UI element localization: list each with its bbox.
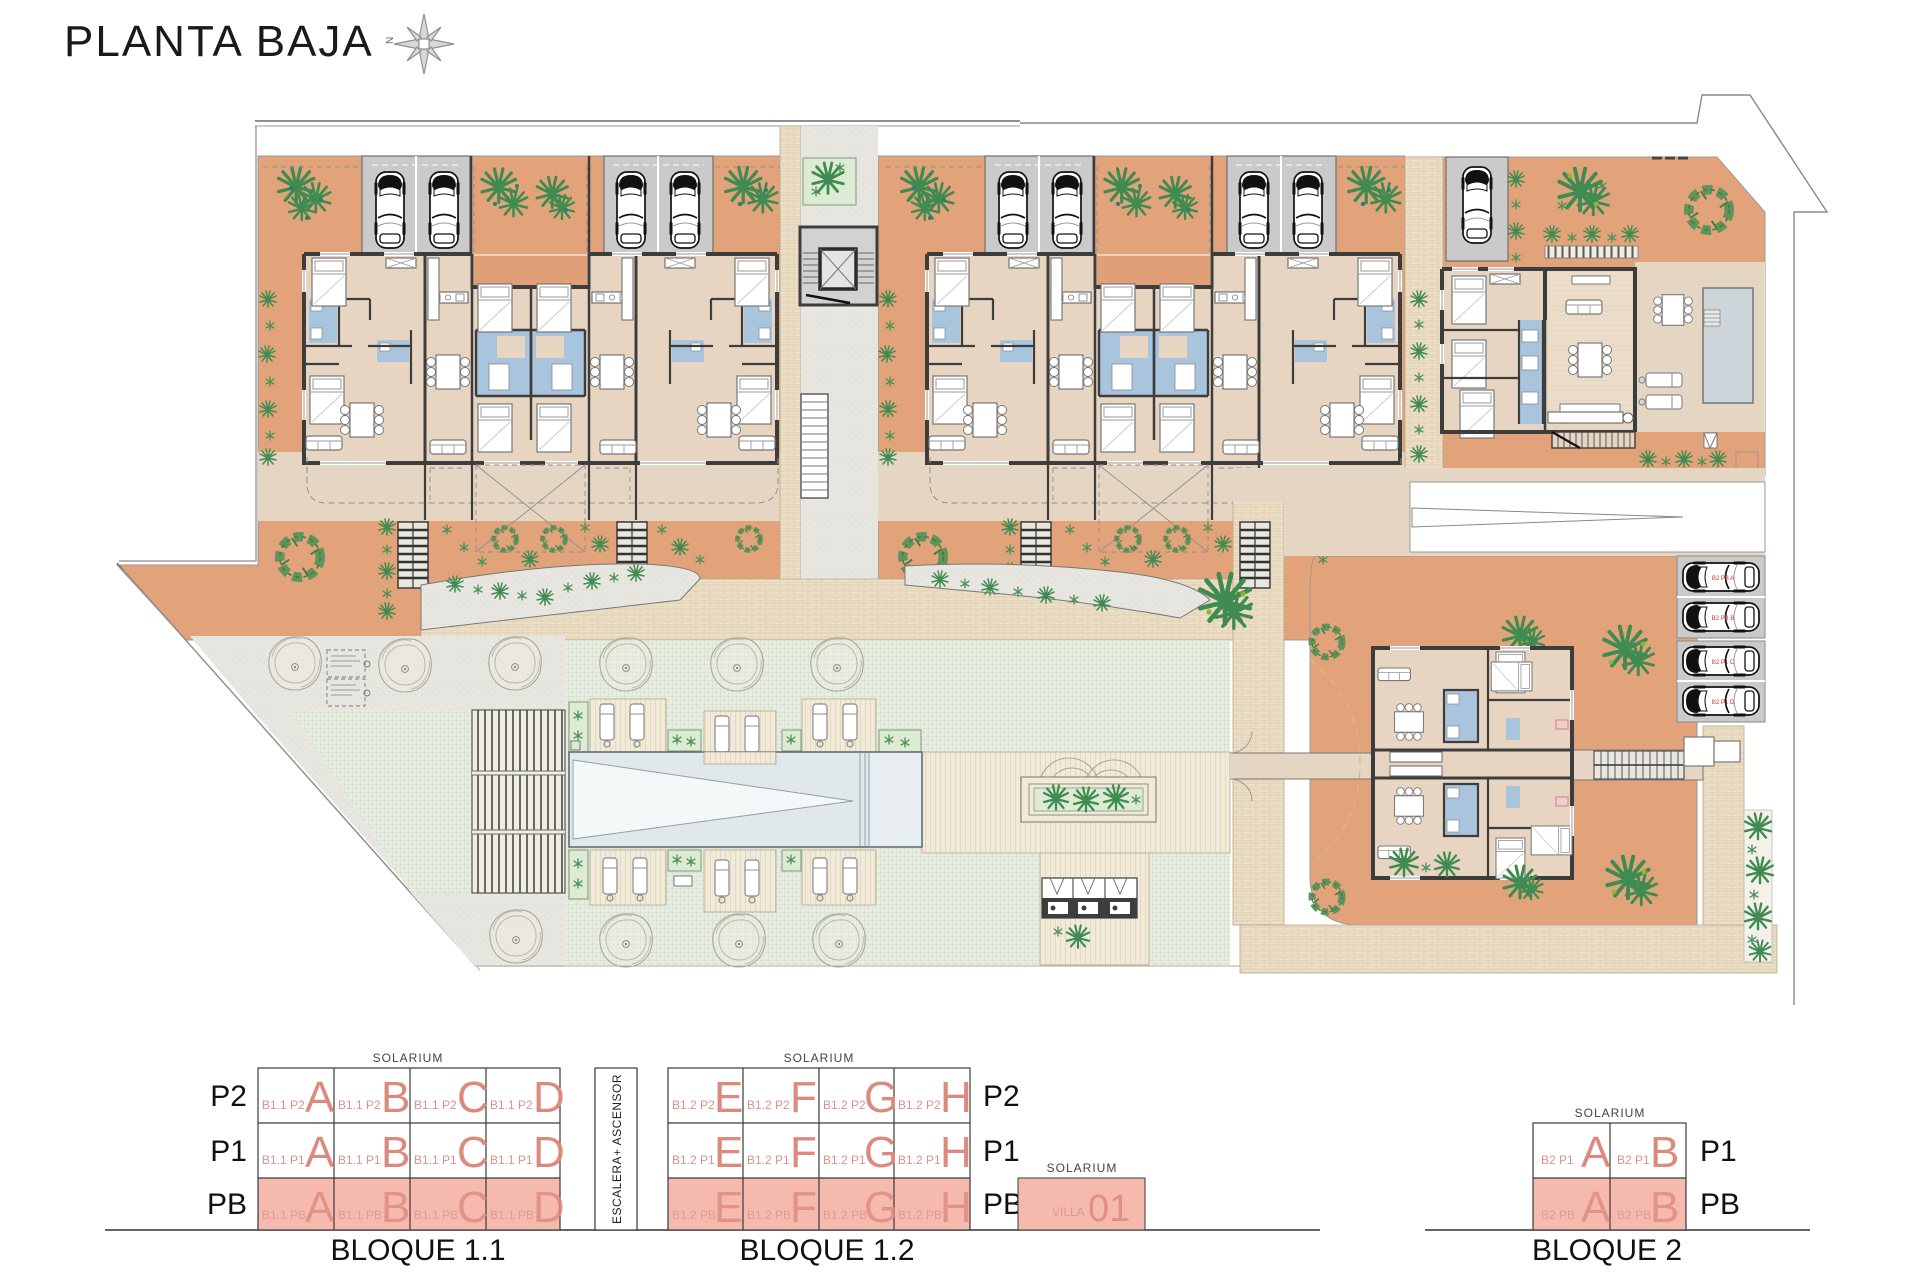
svg-text:D: D — [533, 1128, 565, 1177]
svg-text:B1.2 P2: B1.2 P2 — [823, 1098, 866, 1112]
svg-text:B1.1 PB: B1.1 PB — [338, 1208, 382, 1222]
svg-text:B2 P1: B2 P1 — [1617, 1153, 1650, 1167]
svg-text:B1.2 PB: B1.2 PB — [747, 1208, 791, 1222]
svg-text:B2 PB A: B2 PB A — [1712, 576, 1734, 582]
svg-text:PB: PB — [983, 1188, 1023, 1221]
svg-text:A: A — [305, 1128, 335, 1177]
svg-text:B1.2 PB: B1.2 PB — [898, 1208, 942, 1222]
svg-text:B2 P1 C: B2 P1 C — [1712, 660, 1735, 666]
svg-text:H: H — [940, 1183, 972, 1232]
svg-text:B: B — [1650, 1128, 1679, 1177]
svg-text:B1.2 PB: B1.2 PB — [823, 1208, 867, 1222]
svg-text:A: A — [305, 1183, 335, 1232]
svg-text:B1.1 PB: B1.1 PB — [490, 1208, 534, 1222]
svg-text:B1.2 P2: B1.2 P2 — [898, 1098, 941, 1112]
svg-text:B1.1 P1: B1.1 P1 — [338, 1153, 381, 1167]
svg-text:B1.1 P2: B1.1 P2 — [414, 1098, 457, 1112]
svg-text:B1.1 P2: B1.1 P2 — [490, 1098, 533, 1112]
svg-text:E: E — [714, 1073, 743, 1122]
svg-text:G: G — [864, 1128, 898, 1177]
svg-text:F: F — [790, 1073, 817, 1122]
svg-text:SOLARIUM: SOLARIUM — [784, 1051, 855, 1065]
svg-text:D: D — [533, 1183, 565, 1232]
svg-text:A: A — [1581, 1128, 1611, 1177]
svg-text:SOLARIUM: SOLARIUM — [373, 1051, 444, 1065]
svg-text:B: B — [381, 1183, 410, 1232]
svg-text:B2 PB B: B2 PB B — [1712, 616, 1735, 622]
svg-text:PB: PB — [207, 1188, 247, 1221]
svg-text:E: E — [714, 1128, 743, 1177]
svg-text:B1.1 PB: B1.1 PB — [262, 1208, 306, 1222]
svg-text:G: G — [864, 1073, 898, 1122]
svg-text:SOLARIUM: SOLARIUM — [1047, 1161, 1118, 1175]
svg-text:B1.1 P1: B1.1 P1 — [262, 1153, 305, 1167]
svg-text:B1.2 P1: B1.2 P1 — [823, 1153, 866, 1167]
svg-text:BLOQUE 1.2: BLOQUE 1.2 — [739, 1234, 914, 1267]
svg-text:BLOQUE 1.1: BLOQUE 1.1 — [330, 1234, 505, 1267]
svg-text:B2 P1 D: B2 P1 D — [1712, 700, 1735, 706]
svg-text:P1: P1 — [210, 1135, 247, 1168]
svg-text:B1.2 P1: B1.2 P1 — [672, 1153, 715, 1167]
svg-text:N: N — [385, 37, 396, 44]
svg-text:C: C — [457, 1183, 489, 1232]
svg-text:H: H — [940, 1073, 972, 1122]
svg-text:B1.1 P2: B1.1 P2 — [338, 1098, 381, 1112]
svg-text:B2 P1: B2 P1 — [1541, 1153, 1574, 1167]
svg-text:P2: P2 — [210, 1080, 247, 1113]
svg-text:B1.2 P1: B1.2 P1 — [898, 1153, 941, 1167]
svg-text:H: H — [940, 1128, 972, 1177]
svg-text:ESCALERA+ ASCENSOR: ESCALERA+ ASCENSOR — [610, 1074, 624, 1224]
svg-text:B1.2 P2: B1.2 P2 — [672, 1098, 715, 1112]
svg-text:SOLARIUM: SOLARIUM — [1575, 1106, 1646, 1120]
svg-text:B2 PB: B2 PB — [1541, 1208, 1575, 1222]
svg-text:PB: PB — [1700, 1188, 1740, 1221]
svg-text:D: D — [533, 1073, 565, 1122]
svg-text:A: A — [1581, 1183, 1611, 1232]
svg-text:E: E — [714, 1183, 743, 1232]
svg-text:B1.1 PB: B1.1 PB — [414, 1208, 458, 1222]
svg-text:B1.1 P1: B1.1 P1 — [414, 1153, 457, 1167]
svg-text:C: C — [457, 1073, 489, 1122]
svg-text:P1: P1 — [1700, 1135, 1737, 1168]
svg-text:B1.1 P1: B1.1 P1 — [490, 1153, 533, 1167]
svg-text:B1.2 PB: B1.2 PB — [672, 1208, 716, 1222]
svg-text:B: B — [381, 1128, 410, 1177]
svg-text:B1.2 P2: B1.2 P2 — [747, 1098, 790, 1112]
svg-text:C: C — [457, 1128, 489, 1177]
svg-text:B1.2 P1: B1.2 P1 — [747, 1153, 790, 1167]
svg-text:F: F — [790, 1128, 817, 1177]
svg-text:B: B — [381, 1073, 410, 1122]
svg-text:P1: P1 — [983, 1135, 1020, 1168]
svg-text:P2: P2 — [983, 1080, 1020, 1113]
svg-text:01: 01 — [1088, 1188, 1130, 1230]
svg-text:B1.1 P2: B1.1 P2 — [262, 1098, 305, 1112]
svg-text:A: A — [305, 1073, 335, 1122]
svg-text:B2 PB: B2 PB — [1617, 1208, 1651, 1222]
svg-text:PLANTA BAJA: PLANTA BAJA — [64, 17, 374, 66]
svg-text:B: B — [1650, 1183, 1679, 1232]
svg-text:BLOQUE 2: BLOQUE 2 — [1532, 1234, 1682, 1267]
svg-text:VILLA: VILLA — [1052, 1205, 1085, 1219]
svg-text:F: F — [790, 1183, 817, 1232]
svg-text:G: G — [864, 1183, 898, 1232]
